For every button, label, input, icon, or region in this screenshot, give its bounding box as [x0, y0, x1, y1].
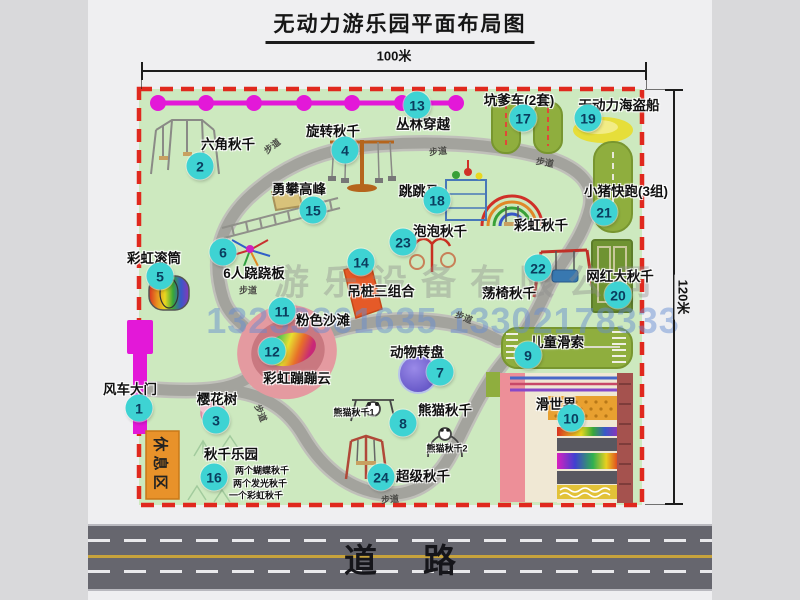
map-marker-2: 2	[187, 153, 214, 180]
map-sublabel: 熊猫秋千1	[333, 406, 374, 419]
map-marker-15: 15	[300, 197, 327, 224]
map-marker-23: 23	[390, 229, 417, 256]
map-label: 旋转秋千	[306, 120, 360, 140]
map-marker-1: 1	[126, 395, 153, 422]
map-label: 勇攀高峰	[272, 178, 326, 198]
footpath-label: 步道	[239, 284, 257, 297]
footpath-label: 步道	[428, 144, 447, 159]
footpath-label: 步道	[535, 154, 555, 170]
map-marker-20: 20	[605, 282, 632, 309]
map-marker-13: 13	[404, 92, 431, 119]
dim-line-top	[142, 70, 646, 72]
dim-ext-right-bottom	[645, 504, 674, 505]
map-sublabel: 两个蝴蝶秋千	[235, 464, 289, 477]
dim-label-width: 100米	[372, 46, 417, 65]
map-label: 荡椅秋千	[482, 282, 536, 302]
footpath-label: 步道	[380, 492, 399, 507]
map-label: 彩虹蹦蹦云	[263, 367, 331, 387]
map-label: 超级秋千	[396, 465, 450, 485]
dim-ext-top-right	[646, 70, 647, 89]
map-marker-18: 18	[424, 187, 451, 214]
map-marker-16: 16	[201, 464, 228, 491]
page-title: 无动力游乐园平面布局图	[266, 8, 535, 44]
map-label: 6人跷跷板	[223, 262, 285, 282]
map-label: 秋千乐园	[204, 443, 258, 463]
map-marker-24: 24	[368, 464, 395, 491]
dim-label-height: 120米	[675, 275, 694, 320]
map-label: 六角秋千	[201, 133, 255, 153]
map-marker-7: 7	[427, 359, 454, 386]
map-label: 小猪快跑(3组)	[584, 180, 668, 200]
map-label: 樱花树	[197, 388, 238, 408]
footpath-label: 步道	[252, 402, 271, 424]
map-marker-8: 8	[390, 410, 417, 437]
park-plan-screenshot: 无动力游乐园平面布局图 100米 120米 游乐设备有限公司 132338616…	[0, 0, 800, 600]
map-marker-3: 3	[203, 407, 230, 434]
map-marker-5: 5	[147, 263, 174, 290]
map-marker-22: 22	[525, 255, 552, 282]
map-marker-11: 11	[269, 298, 296, 325]
map-marker-12: 12	[259, 338, 286, 365]
map-sublabel: 熊猫秋千2	[426, 442, 467, 455]
map-sublabel: 一个彩虹秋千	[229, 489, 283, 502]
map-label: 风车大门	[103, 378, 157, 398]
map-marker-19: 19	[575, 105, 602, 132]
map-label: 吊桩三组合	[347, 280, 415, 300]
map-label: 粉色沙滩	[296, 309, 350, 329]
map-label: 泡泡秋千	[413, 220, 467, 240]
footpath-label: 步道	[453, 308, 475, 327]
map-label: 彩虹秋千	[514, 214, 568, 234]
map-marker-9: 9	[515, 342, 542, 369]
dim-ext-right-top	[645, 89, 674, 90]
footpath-label: 步道	[261, 135, 283, 156]
map-marker-6: 6	[210, 239, 237, 266]
map-marker-17: 17	[510, 105, 537, 132]
map-marker-14: 14	[348, 249, 375, 276]
map-marker-4: 4	[332, 137, 359, 164]
map-label: 熊猫秋千	[418, 399, 472, 419]
map-marker-21: 21	[591, 199, 618, 226]
map-marker-10: 10	[558, 405, 585, 432]
dim-ext-top-left	[141, 70, 142, 89]
